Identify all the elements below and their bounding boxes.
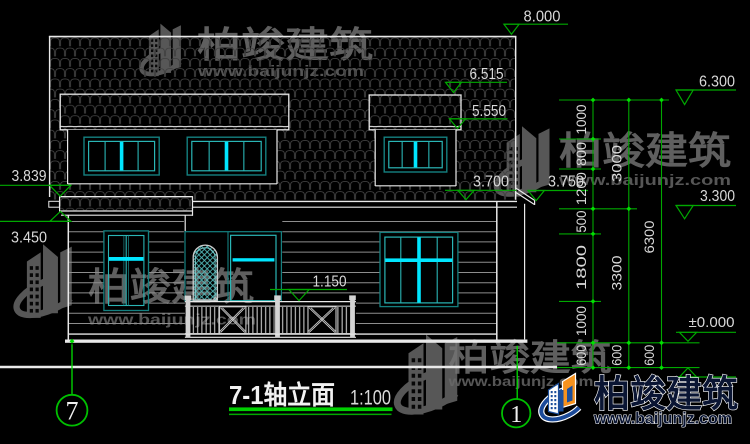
svg-text:7: 7 bbox=[66, 397, 79, 426]
svg-text:3000: 3000 bbox=[609, 145, 625, 182]
svg-text:1.150: 1.150 bbox=[313, 273, 347, 290]
svg-text:3.300: 3.300 bbox=[700, 188, 735, 205]
svg-text:600: 600 bbox=[573, 345, 589, 366]
svg-text:600: 600 bbox=[609, 345, 625, 366]
svg-text:7-1轴立面: 7-1轴立面 bbox=[229, 380, 335, 410]
svg-text:www.baijunjz.com: www.baijunjz.com bbox=[593, 411, 732, 428]
svg-text:3.450: 3.450 bbox=[11, 230, 47, 247]
svg-text:3.839: 3.839 bbox=[12, 168, 47, 185]
svg-text:800: 800 bbox=[573, 142, 589, 166]
svg-text:1200: 1200 bbox=[573, 172, 589, 205]
svg-text:5.550: 5.550 bbox=[472, 103, 506, 120]
svg-text:6.300: 6.300 bbox=[699, 74, 735, 91]
svg-text:3300: 3300 bbox=[609, 255, 625, 290]
svg-text:500: 500 bbox=[573, 210, 589, 232]
svg-text:600: 600 bbox=[641, 345, 657, 366]
svg-text:1000: 1000 bbox=[573, 306, 589, 336]
svg-text:1:100: 1:100 bbox=[350, 386, 391, 409]
svg-text:1: 1 bbox=[510, 402, 522, 428]
svg-text:1000: 1000 bbox=[573, 104, 589, 134]
svg-text:1800: 1800 bbox=[573, 245, 589, 290]
svg-text:6300: 6300 bbox=[641, 220, 657, 253]
svg-text:3.700: 3.700 bbox=[473, 173, 509, 190]
svg-text:±0.000: ±0.000 bbox=[689, 314, 735, 331]
svg-text:8.000: 8.000 bbox=[524, 9, 561, 26]
svg-text:柏竣建筑: 柏竣建筑 bbox=[594, 373, 738, 415]
svg-text:6.515: 6.515 bbox=[470, 66, 504, 83]
